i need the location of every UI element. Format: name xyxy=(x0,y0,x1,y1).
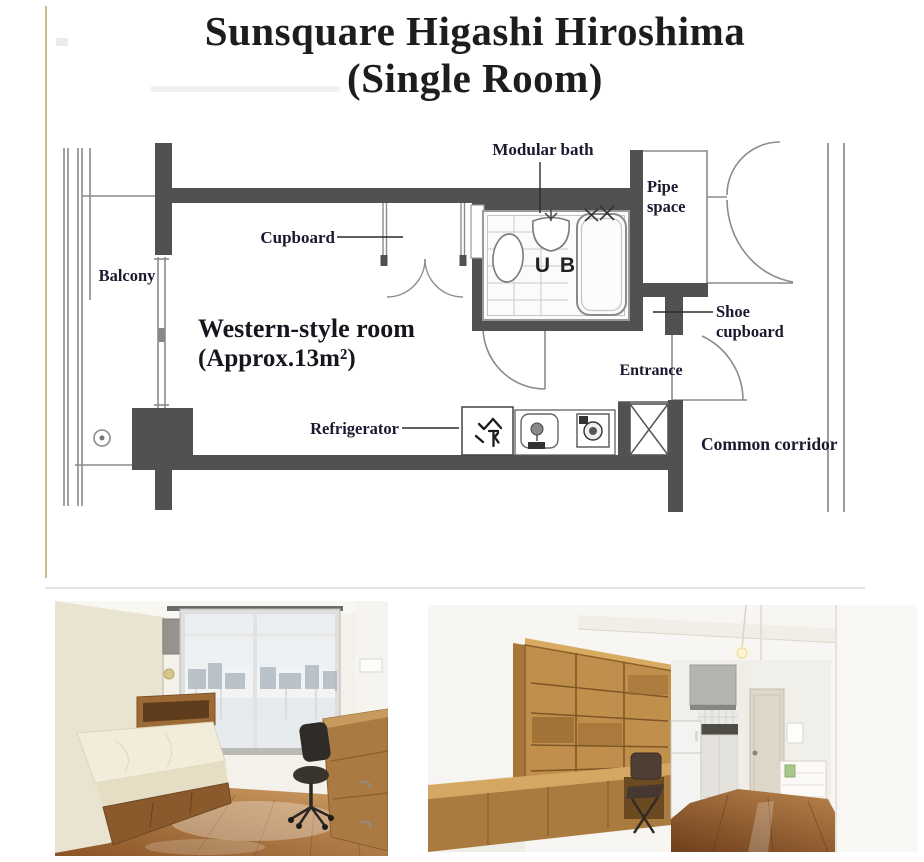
label-cupboard: Cupboard xyxy=(260,228,335,247)
tile-backsplash xyxy=(698,710,740,724)
label-shoe-cupboard-1: Shoe xyxy=(716,302,750,321)
label-refrigerator: Refrigerator xyxy=(310,419,399,438)
range-hood xyxy=(690,665,736,705)
floor-plan: Modular bath Pipe space Cupboard Balcony… xyxy=(40,120,920,590)
label-modular-bath: Modular bath xyxy=(492,140,594,159)
bathtub-icon xyxy=(577,214,626,315)
brochure-page: Sunsquare Higashi Hiroshima (Single Room… xyxy=(0,0,924,862)
right-wall xyxy=(836,605,917,852)
refrigerator-box xyxy=(462,407,513,455)
label-shoe-cupboard-2: cupboard xyxy=(716,322,784,341)
wall-clock xyxy=(164,669,174,679)
label-unit-bath: U B xyxy=(535,254,577,277)
cupboard-doors xyxy=(381,203,467,297)
label-room-area: (Approx.13m²) xyxy=(198,345,356,372)
label-room-name: Western-style room xyxy=(198,314,415,343)
entrance-door-arc xyxy=(672,335,747,400)
label-entrance: Entrance xyxy=(619,362,682,379)
kitchen xyxy=(462,402,668,455)
ac-panel xyxy=(360,659,382,672)
balcony-window xyxy=(154,257,169,408)
page-title-line1: Sunsquare Higashi Hiroshima xyxy=(26,8,924,55)
page-title-line2: (Single Room) xyxy=(26,55,924,102)
pendant-light xyxy=(737,648,747,658)
desk-cabinet xyxy=(323,709,388,851)
entrance-door-photo xyxy=(750,689,784,807)
room-photo-kitchen xyxy=(428,605,917,852)
label-common-corridor: Common corridor xyxy=(701,434,838,454)
city-skyline xyxy=(188,663,337,691)
scan-smudge xyxy=(150,86,340,92)
room-photo-bedroom xyxy=(55,601,388,856)
label-pipe-space-2: space xyxy=(647,197,686,216)
common-corridor-lines xyxy=(828,143,844,512)
hall-door-arc xyxy=(483,327,545,389)
label-pipe-space-1: Pipe xyxy=(647,177,678,196)
page-title: Sunsquare Higashi Hiroshima (Single Room… xyxy=(0,8,924,102)
light-switch xyxy=(787,723,803,743)
scan-smudge xyxy=(56,38,68,46)
counter xyxy=(698,724,740,735)
label-balcony: Balcony xyxy=(99,266,157,285)
